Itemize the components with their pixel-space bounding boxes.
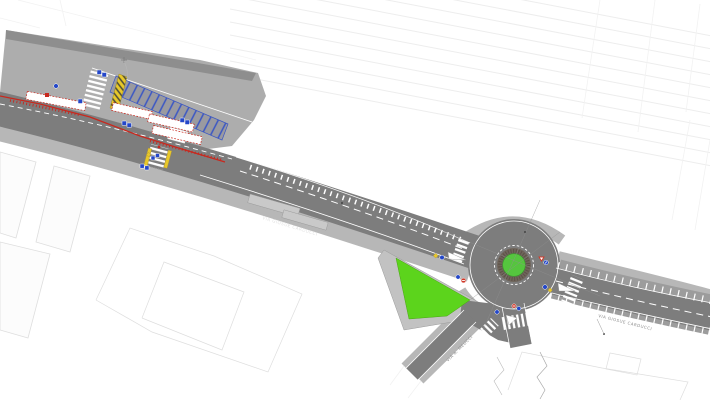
- road-plan-drawing: VIA GIOSUE CARDUCCI VIA GIOSUE CARDUCCI …: [0, 0, 710, 400]
- signal-marker: [158, 146, 161, 149]
- bus-stop-marker: [45, 93, 49, 97]
- blue-circle-sign-icon: [54, 84, 59, 89]
- cad-road-plan-canvas: VIA GIOSUE CARDUCCI VIA GIOSUE CARDUCCI …: [0, 0, 710, 400]
- blue-circle-sign-icon: [495, 310, 499, 314]
- blue-rect-sign-icon: [78, 99, 83, 104]
